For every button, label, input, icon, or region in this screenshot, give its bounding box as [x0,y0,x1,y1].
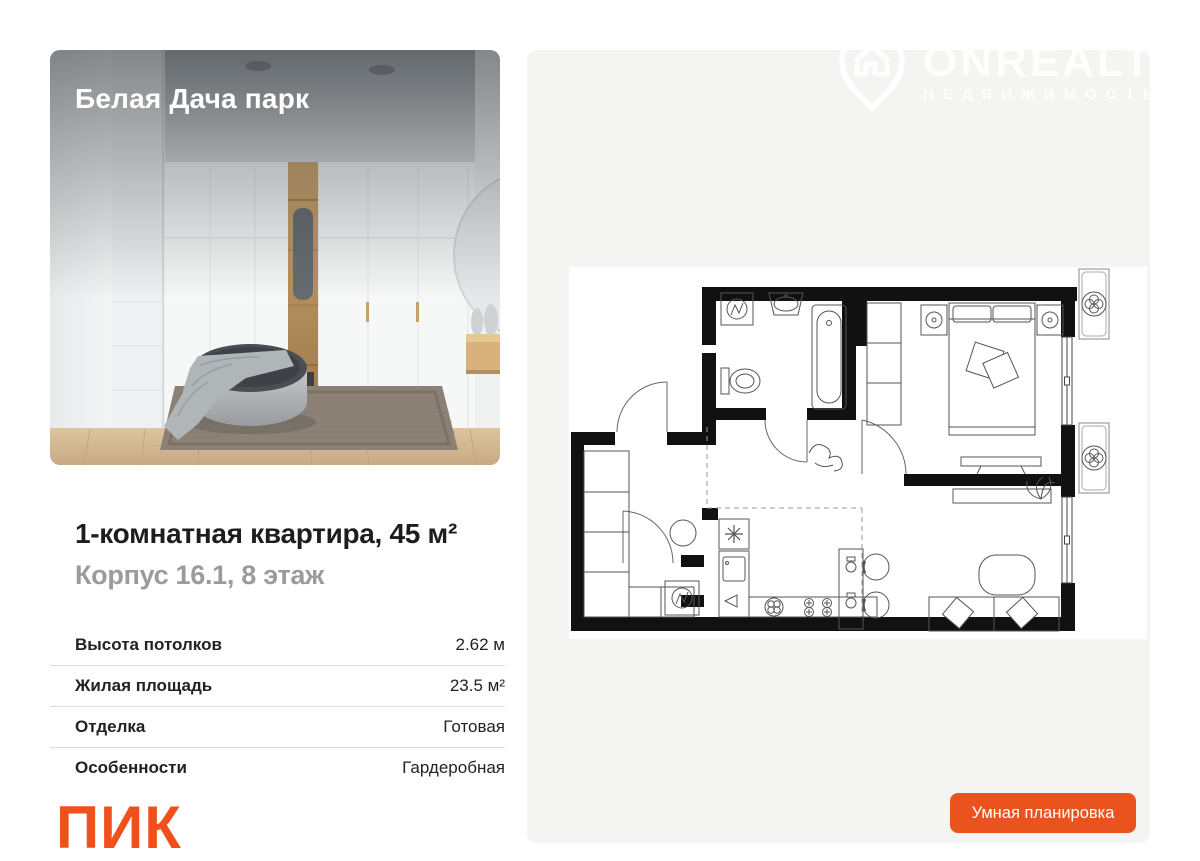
spec-value: Гардеробная [402,758,505,778]
spec-row: Особенности Гардеробная [50,748,505,788]
spec-table: Высота потолков 2.62 м Жилая площадь 23.… [50,625,505,788]
spec-value: 23.5 м² [450,676,505,696]
spec-value: 2.62 м [456,635,506,655]
watermark-subtitle: НЕДВИЖИМОСТЬ [923,86,1163,103]
project-name: Белая Дача парк [75,83,309,115]
pik-developer-logo[interactable]: ПИК [56,798,182,858]
spec-label: Особенности [75,758,187,778]
spec-row: Высота потолков 2.62 м [50,625,505,666]
listing-subtitle: Корпус 16.1, 8 этаж [75,560,515,591]
spec-value: Готовая [443,717,505,737]
page-title: 1-комнатная квартира, 45 м² [75,518,515,550]
apartment-photo-card: Белая Дача парк [50,50,500,465]
spec-label: Высота потолков [75,635,222,655]
watermark-title: ONREALT [923,40,1163,84]
smart-layout-button[interactable]: Умная планировка [950,793,1136,833]
spec-label: Жилая площадь [75,676,212,696]
onrealt-pin-house-icon [835,28,909,114]
spec-label: Отделка [75,717,145,737]
floor-plan-image [569,267,1147,639]
spec-row: Жилая площадь 23.5 м² [50,666,505,707]
spec-row: Отделка Готовая [50,707,505,748]
floor-plan-panel: ONREALT НЕДВИЖИМОСТЬ [527,50,1150,843]
onrealt-watermark: ONREALT НЕДВИЖИМОСТЬ [835,28,1163,114]
page: { "photo_card": { "project_name": "Белая… [0,0,1200,850]
